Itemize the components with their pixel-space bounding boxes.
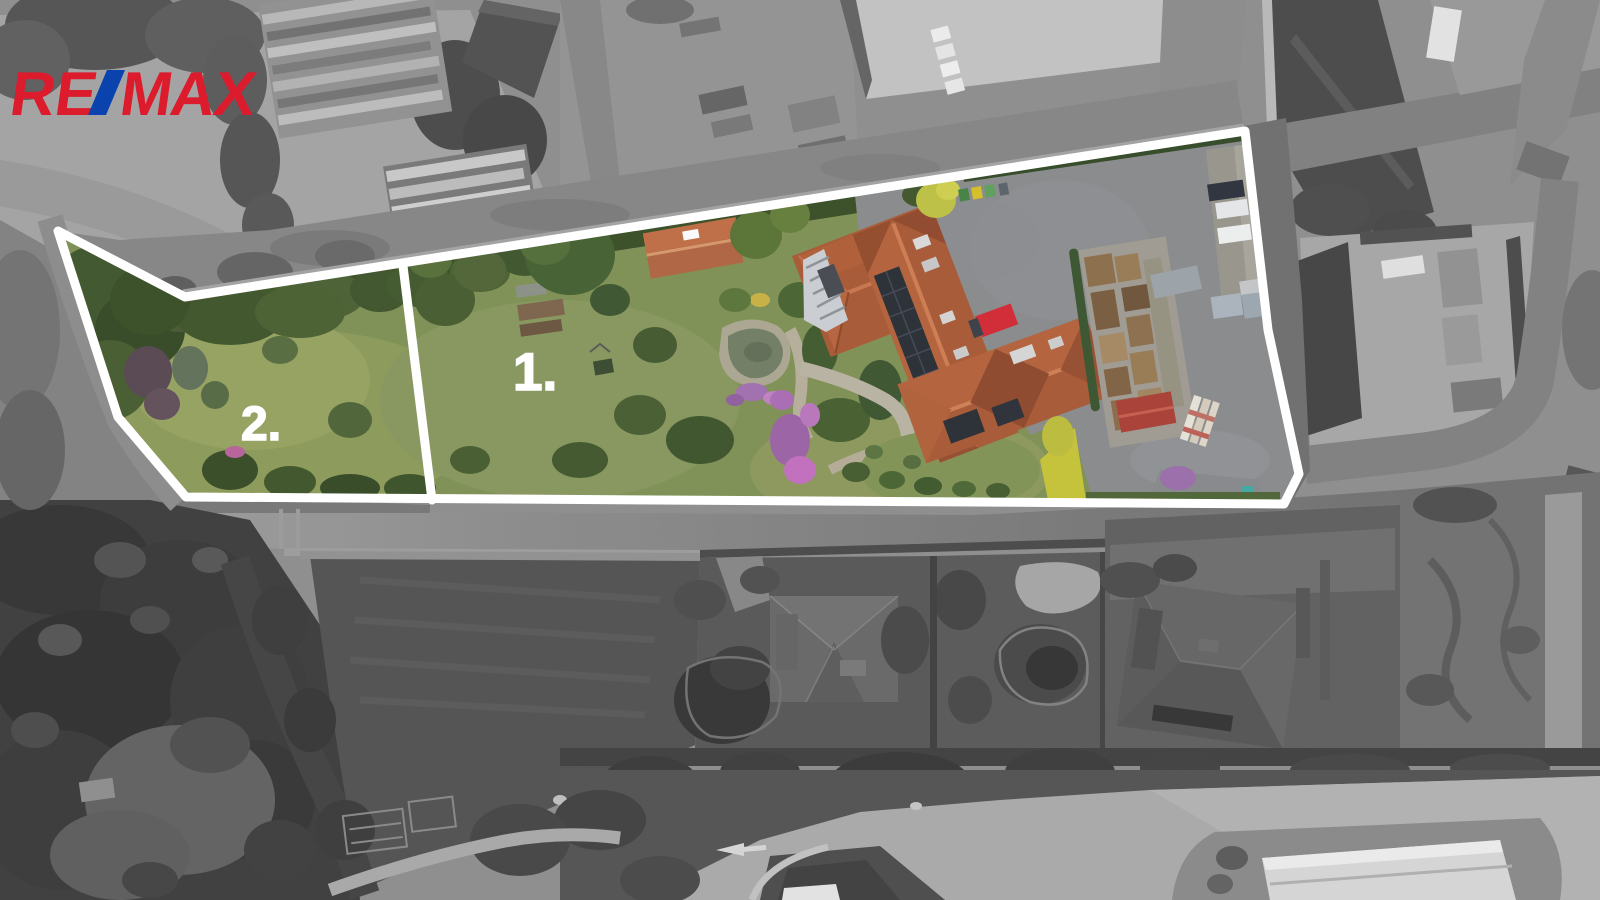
svg-text:2.: 2. [241, 398, 281, 451]
svg-text:MAX: MAX [116, 60, 260, 129]
svg-text:1.: 1. [513, 343, 557, 402]
svg-text:RE: RE [6, 60, 102, 129]
